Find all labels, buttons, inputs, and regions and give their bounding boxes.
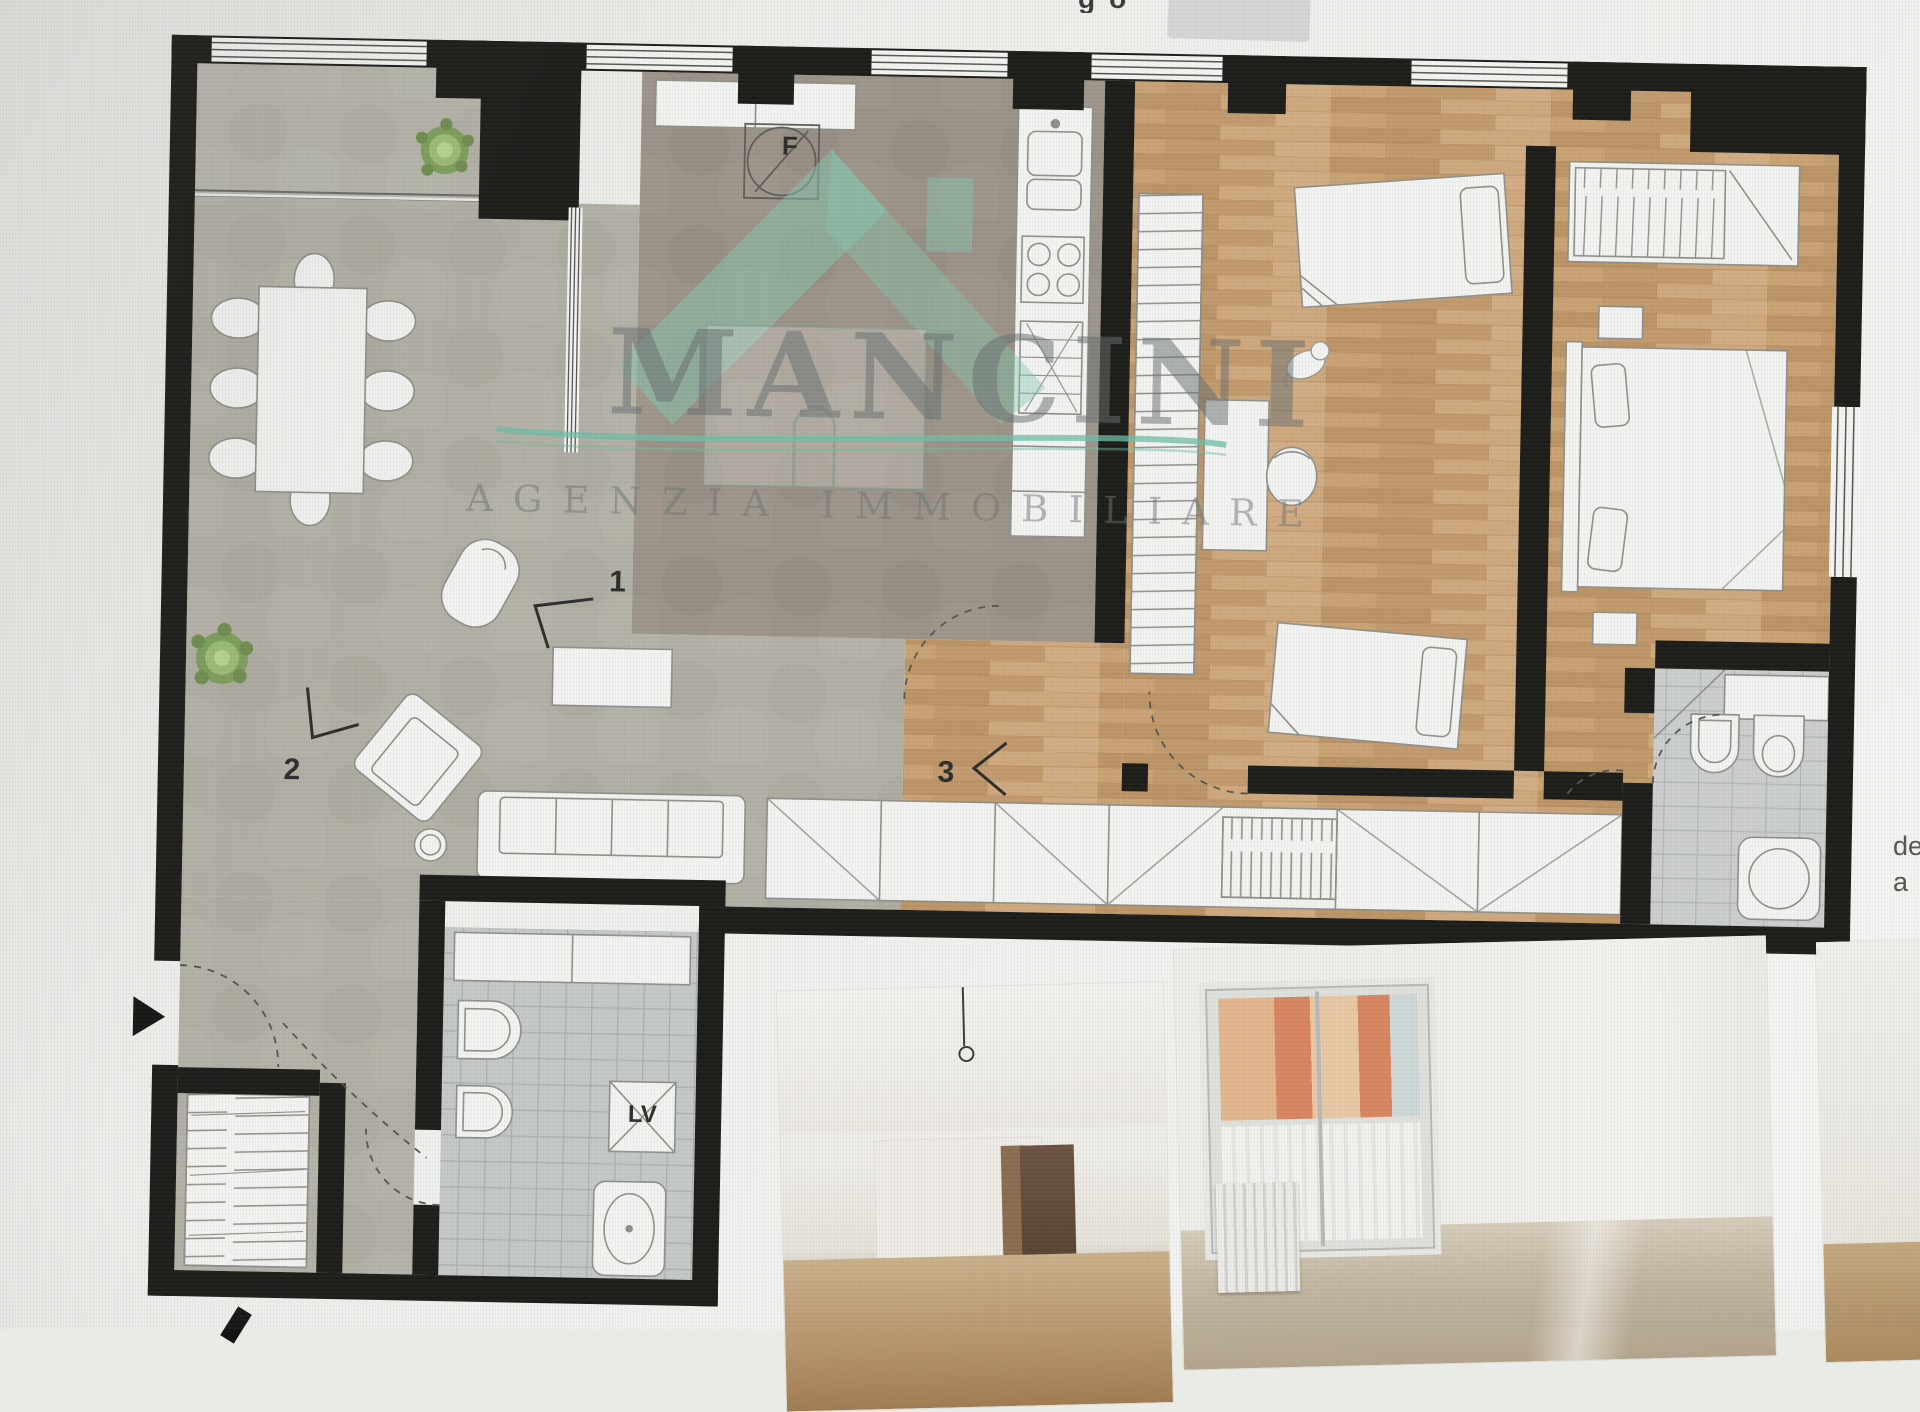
bidet	[1690, 714, 1739, 773]
wardrobe-double-bedroom	[1568, 162, 1800, 266]
hallway-cabinet-row	[765, 798, 1622, 914]
right-edge-text-line2: a	[1893, 864, 1920, 900]
photo3-floor	[1823, 1240, 1920, 1362]
nightstand-1	[1598, 306, 1643, 339]
photo2-light-reflection	[1506, 1219, 1687, 1362]
radiator-hatch	[1222, 817, 1338, 899]
photo1-wood-floor	[783, 1251, 1173, 1412]
entrance-arrow	[133, 996, 166, 1037]
toilet	[1753, 715, 1804, 777]
double-bed	[1562, 342, 1788, 596]
label-point-1: 1	[609, 565, 626, 598]
photo2-walls	[1434, 935, 1773, 1237]
interior-photo-2[interactable]	[1174, 935, 1776, 1369]
sofa	[477, 791, 746, 884]
bathtub	[1737, 837, 1821, 921]
toilet-2	[457, 1000, 521, 1059]
single-bed-1	[1294, 173, 1512, 307]
top-ui-fragment	[1167, 0, 1310, 42]
right-edge-text-line1: de	[1893, 828, 1920, 864]
coffee-table	[552, 647, 672, 707]
label-point-3: 3	[937, 756, 954, 789]
photo2-radiator	[1215, 1182, 1301, 1293]
nightstand-2	[1593, 612, 1638, 645]
washing-machine-label: LV	[628, 1101, 657, 1129]
ottoman	[414, 829, 447, 862]
bidet-2	[456, 1085, 513, 1138]
label-point-2: 2	[283, 753, 300, 786]
interior-photo-3[interactable]	[1816, 938, 1920, 1362]
fridge-label: F	[782, 130, 798, 160]
right-edge-cropped-text: de a	[1893, 828, 1920, 900]
photo-strip	[760, 929, 1920, 1378]
interior-photo-1[interactable]	[777, 982, 1173, 1411]
closet-shelving	[184, 1093, 309, 1267]
single-bed-2	[1268, 623, 1467, 749]
agency-name: MANCINI	[606, 302, 1321, 455]
shower-tub-2	[592, 1181, 666, 1276]
